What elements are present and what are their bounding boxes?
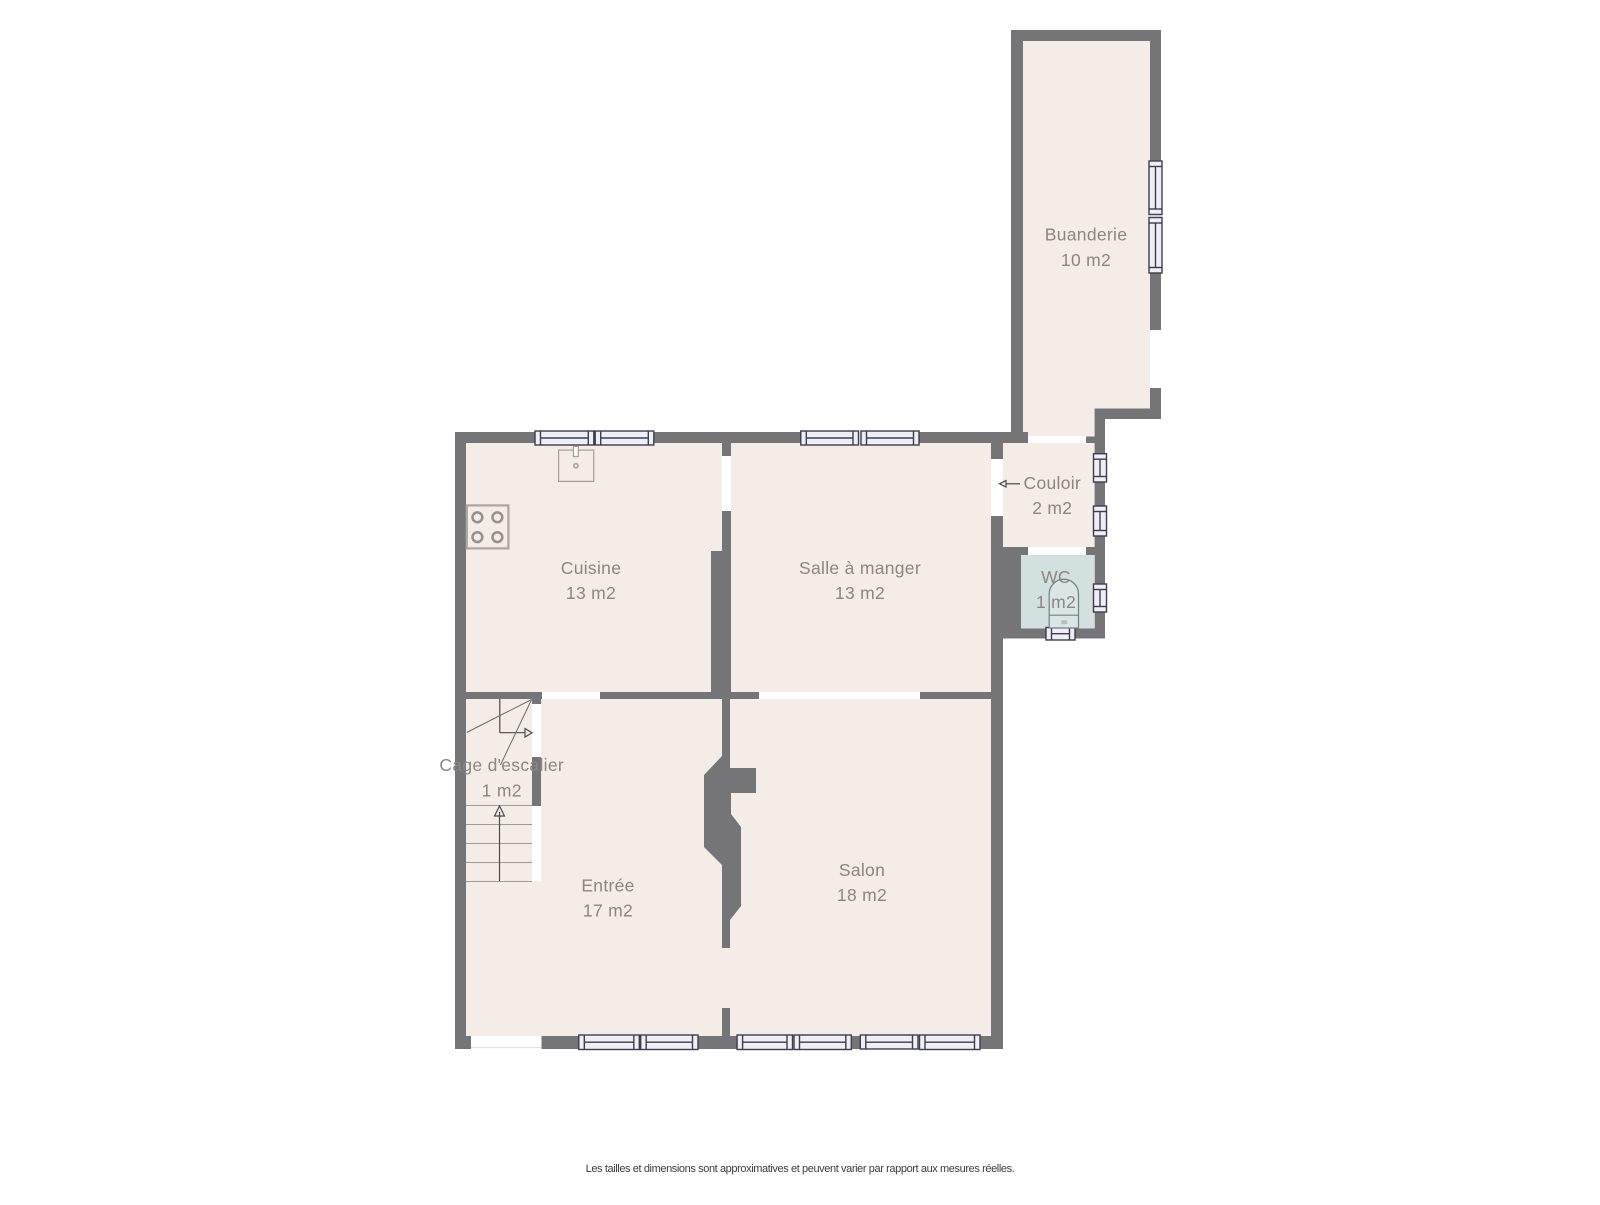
svg-text:Salle à manger: Salle à manger [799,558,921,578]
svg-text:17 m2: 17 m2 [583,901,633,921]
svg-text:Buanderie: Buanderie [1045,225,1127,245]
svg-text:Entrée: Entrée [581,876,634,896]
svg-text:Cuisine: Cuisine [561,558,621,578]
svg-text:WC: WC [1041,567,1071,587]
svg-text:18 m2: 18 m2 [837,885,887,905]
svg-text:Couloir: Couloir [1024,473,1082,493]
svg-text:1 m2: 1 m2 [1036,592,1076,612]
svg-text:13 m2: 13 m2 [835,583,885,603]
svg-text:2 m2: 2 m2 [1032,498,1072,518]
svg-text:Salon: Salon [839,860,885,880]
svg-text:13 m2: 13 m2 [566,583,616,603]
svg-text:10 m2: 10 m2 [1061,250,1111,270]
svg-text:1 m2: 1 m2 [482,781,522,801]
svg-text:Cage d'escalier: Cage d'escalier [439,755,564,775]
svg-text:Les tailles et dimensions sont: Les tailles et dimensions sont approxima… [586,1163,1015,1175]
